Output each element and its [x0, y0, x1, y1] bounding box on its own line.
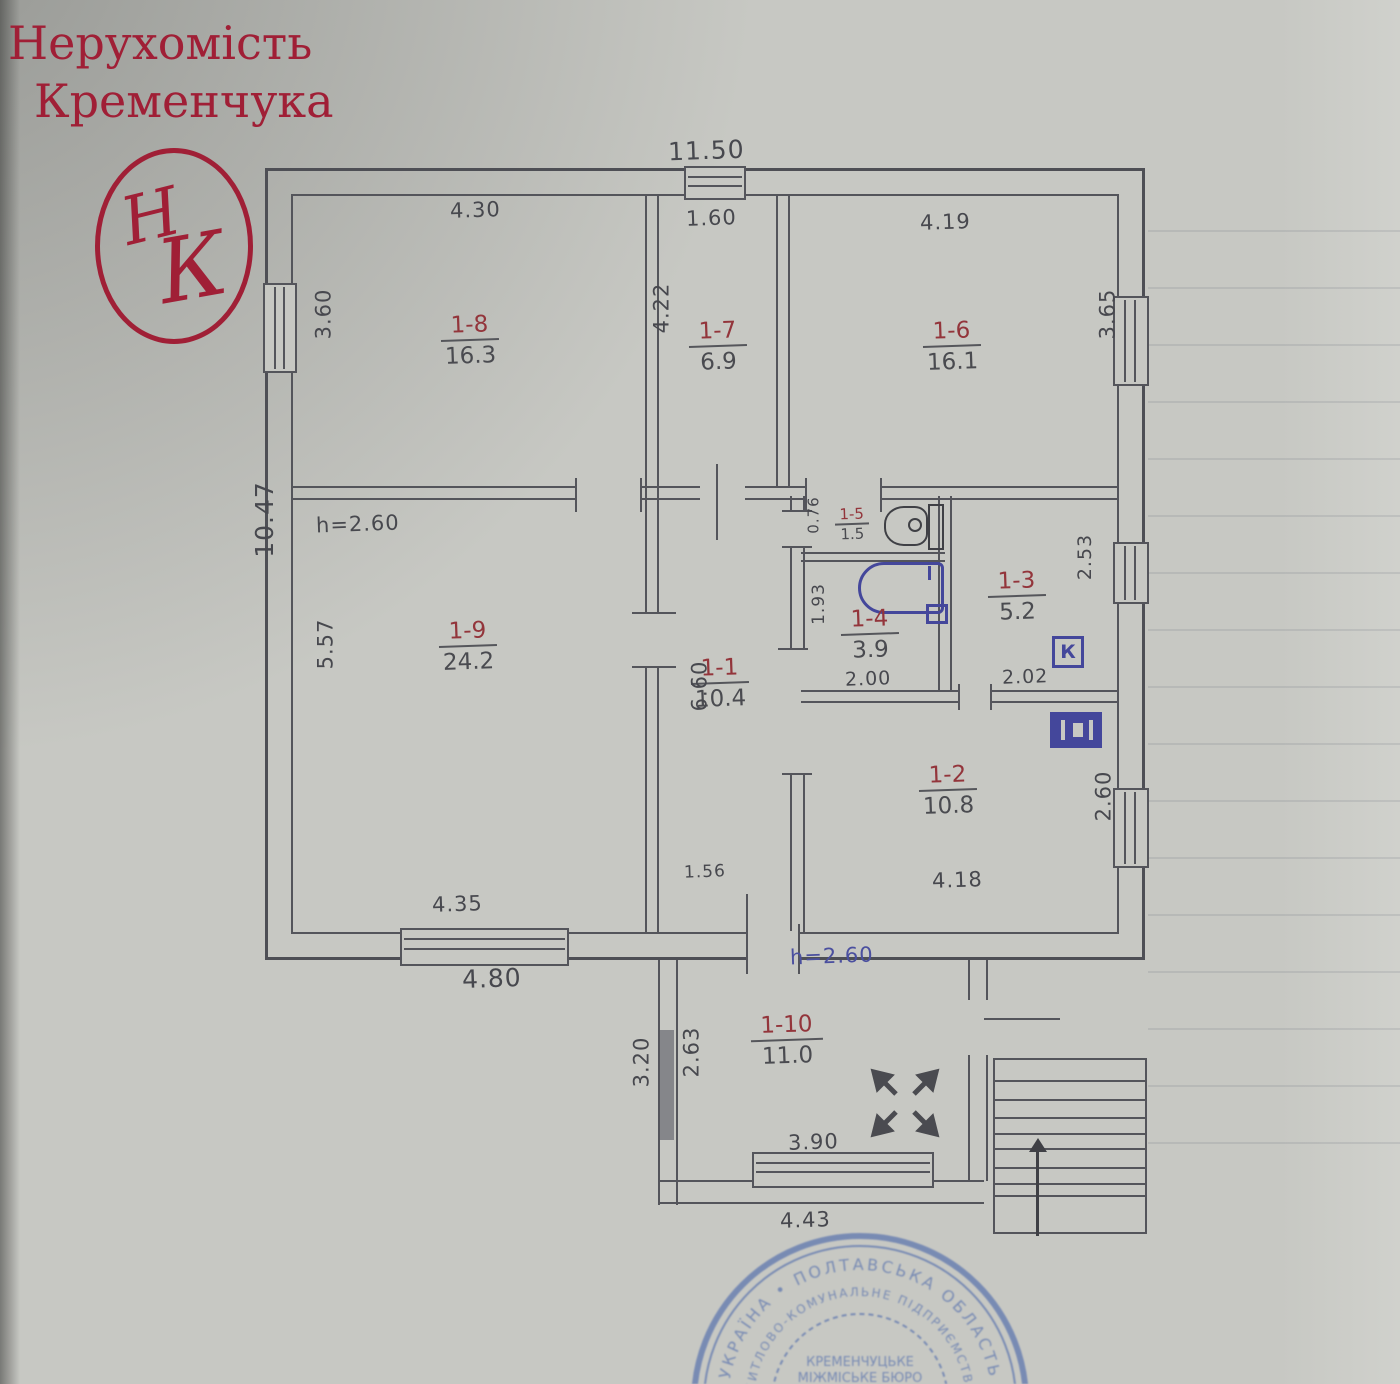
dim-1-10-left: 2.63 [679, 1027, 703, 1078]
room-label-1-5: 1-5 1.5 [821, 503, 882, 544]
door-opening [990, 684, 992, 710]
annex-right-wall [968, 960, 988, 1000]
stairs-arrow-head [1029, 1138, 1047, 1152]
dim-overall-left: 10.47 [250, 481, 279, 558]
room-label-1-10: 1-10 11.0 [731, 1010, 843, 1071]
toilet-icon [884, 504, 944, 546]
note-height-1-9: h=2.60 [316, 511, 400, 538]
dim-1-8-top: 4.30 [450, 197, 502, 223]
heater-stove-icon [1050, 712, 1102, 748]
dim-1-9-bottom: 4.35 [432, 891, 484, 917]
dim-1-6-top: 4.19 [920, 209, 972, 235]
door-opening [958, 684, 960, 710]
annex-right-wall [968, 1055, 988, 1181]
hall-right-wall [790, 548, 805, 650]
dim-1-4-bottom: 2.00 [845, 667, 892, 691]
room-label-1-4: 1-4 3.9 [824, 604, 916, 664]
watermark-text: Нерухомість Кременчука [8, 14, 334, 130]
dim-1-6-right: 3.65 [1095, 289, 1119, 340]
dim-1-2-right: 2.60 [1091, 771, 1115, 822]
dim-1-9-left: 5.57 [313, 619, 337, 670]
room-label-1-8: 1-8 16.3 [414, 310, 526, 371]
hall-right-wall [790, 775, 805, 934]
watermark-line1: Нерухомість [8, 14, 334, 72]
dim-1-8-left: 3.60 [311, 289, 335, 340]
wall [880, 486, 1117, 500]
dim-1-1-bottom: 1.56 [684, 861, 727, 882]
outer-wall-inner-line [291, 194, 1119, 934]
room-label-1-7: 1-7 6.9 [662, 316, 774, 377]
dim-1-10-left-outer: 3.20 [629, 1037, 653, 1088]
dim-1-1-left: 6.60 [687, 661, 711, 712]
door-opening [575, 478, 577, 512]
official-stamp: • УКРАЇНА • ПОЛТАВСЬКА ОБЛАСТЬ • ЖИТЛОВО… [668, 1226, 1052, 1384]
door-opening [746, 894, 748, 974]
room-label-1-1: 1-1 10.4 [664, 653, 776, 714]
dim-1-3-right: 2.53 [1074, 534, 1096, 580]
room-label-1-2: 1-2 10.8 [892, 760, 1004, 821]
room-label-1-9: 1-9 24.2 [412, 616, 524, 677]
door-opening [640, 478, 642, 512]
stamp-center-line1: КРЕМЕНЧУЦЬКЕ [806, 1355, 914, 1370]
note-height-annex: h=2.60 [790, 943, 874, 970]
wall-1-7-1-6 [776, 196, 790, 486]
stamp-center-line2: МІЖМІСЬКЕ БЮРО [798, 1371, 923, 1384]
porch-stairs [993, 1058, 1147, 1234]
dim-1-7-left: 4.22 [649, 283, 673, 334]
window-bottom-1-9 [400, 928, 569, 966]
dim-overall-top: 11.50 [668, 135, 746, 167]
annex-wall-solid-fill [660, 1030, 674, 1140]
door-opening [716, 464, 718, 540]
wall-1-9-1-1 [645, 668, 659, 932]
window-top [684, 166, 746, 200]
wall-1-8-1-7 [645, 196, 659, 614]
ruled-paper-lines [1148, 175, 1400, 1180]
annex-door-tick [984, 1018, 1060, 1020]
scan-right-light [1280, 0, 1400, 1384]
window-right-1-2 [1113, 788, 1149, 868]
door-opening [782, 546, 812, 548]
dim-1-3-bottom: 2.02 [1002, 665, 1049, 689]
dim-1-2-bottom: 4.18 [932, 867, 984, 893]
window-annex [752, 1152, 934, 1188]
door-opening [778, 648, 808, 650]
room-label-1-3: 1-3 5.2 [961, 566, 1073, 627]
cellar-hatch-icon [866, 1064, 944, 1142]
watermark-line2: Кременчука [8, 72, 334, 130]
dim-1-7-top: 1.60 [686, 205, 738, 231]
dim-1-5-left: 0.76 [805, 496, 823, 533]
window-left [263, 283, 297, 373]
dim-1-10-bottom: 3.90 [788, 1129, 840, 1155]
door-opening [782, 773, 812, 775]
wall-above-1-2 [990, 690, 1117, 703]
wall-above-1-2 [801, 690, 960, 703]
room-label-1-6: 1-6 16.1 [896, 316, 1008, 377]
dim-1-4-left: 1.93 [809, 583, 829, 625]
window-right-kitchen [1113, 542, 1149, 604]
door-opening [632, 612, 676, 614]
kitchen-stove-symbol-k: К [1052, 636, 1084, 668]
dim-overall-bottom: 4.80 [462, 963, 523, 994]
stairs-arrow-stem [1036, 1150, 1039, 1236]
wall [293, 486, 575, 500]
wc-bottom-wall [801, 552, 945, 562]
scan-left-edge-shadow [0, 0, 20, 1384]
scanned-floor-plan-page: Нерухомість Кременчука Н К [0, 0, 1400, 1384]
